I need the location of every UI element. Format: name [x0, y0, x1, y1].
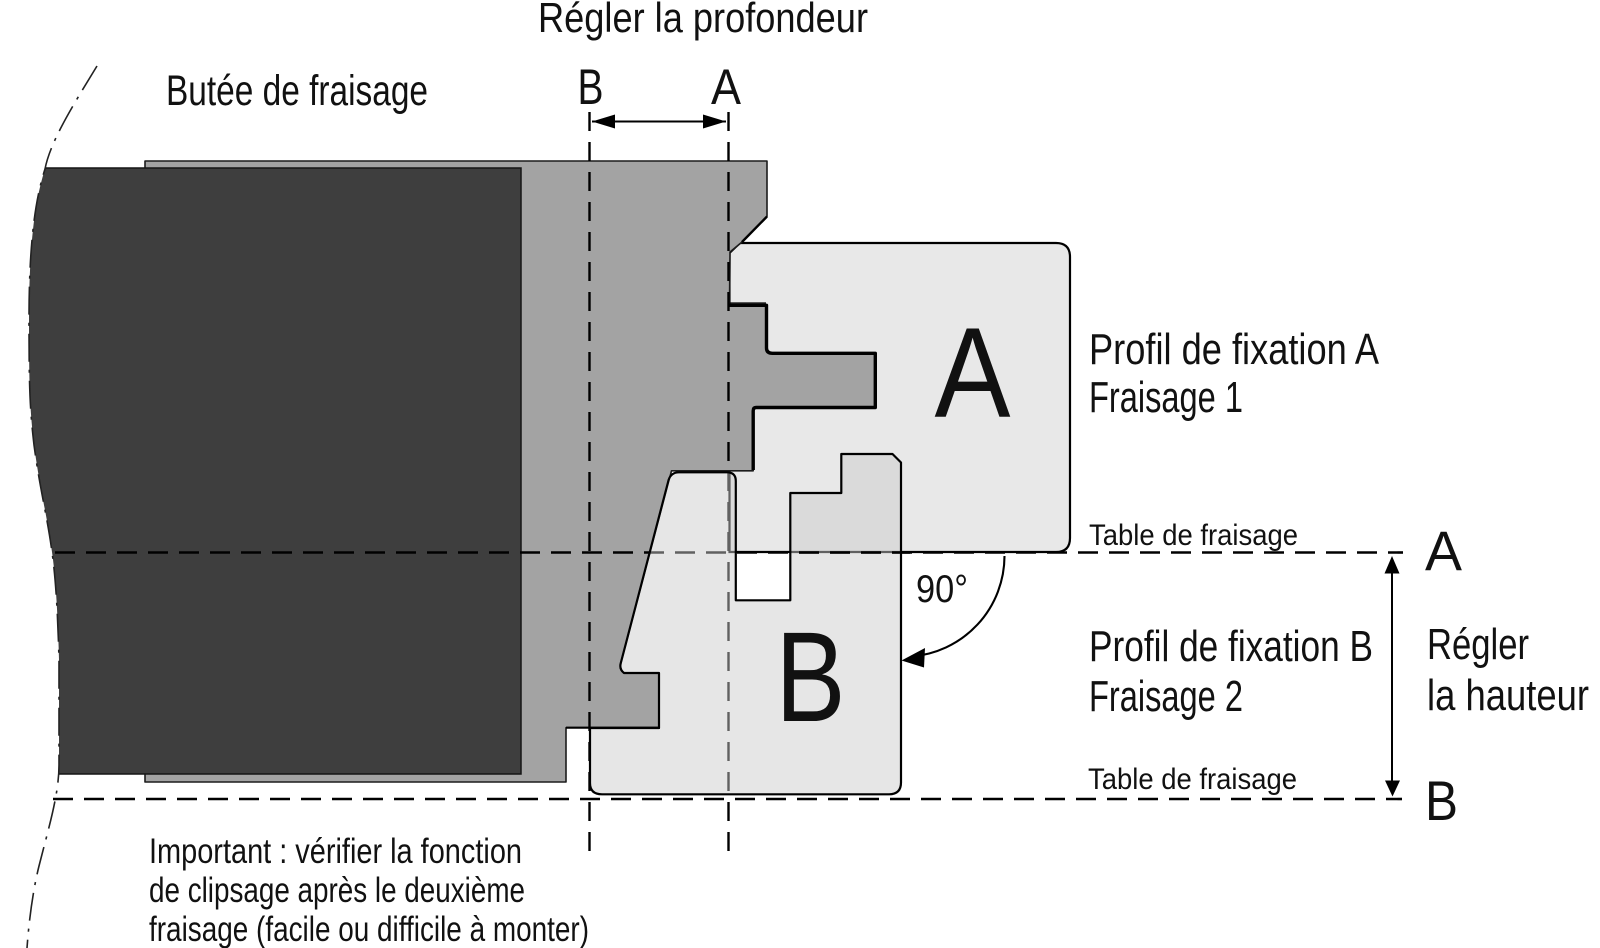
- svg-text:B: B: [578, 59, 604, 115]
- svg-text:la hauteur: la hauteur: [1427, 671, 1589, 720]
- svg-text:Profil de fixation B: Profil de fixation B: [1089, 622, 1373, 671]
- svg-text:Régler: Régler: [1427, 620, 1529, 669]
- svg-text:fraisage (facile ou difficile: fraisage (facile ou difficile à monter): [149, 910, 589, 948]
- svg-text:Fraisage 2: Fraisage 2: [1089, 672, 1243, 721]
- svg-text:A: A: [711, 59, 742, 115]
- svg-text:A: A: [1425, 519, 1463, 582]
- svg-text:B: B: [776, 606, 846, 749]
- svg-text:Fraisage 1: Fraisage 1: [1089, 373, 1243, 422]
- svg-text:90°: 90°: [916, 568, 968, 611]
- svg-text:Régler la profondeur: Régler la profondeur: [538, 0, 868, 41]
- svg-text:Profil de fixation A: Profil de fixation A: [1089, 325, 1380, 374]
- svg-text:B: B: [1425, 769, 1458, 832]
- svg-text:A: A: [935, 302, 1012, 445]
- svg-text:Butée de fraisage: Butée de fraisage: [166, 67, 428, 115]
- svg-text:Important : vérifier la foncti: Important : vérifier la fonction: [149, 832, 522, 871]
- svg-text:Table de fraisage: Table de fraisage: [1088, 763, 1297, 796]
- svg-text:Table de fraisage: Table de fraisage: [1089, 519, 1298, 552]
- svg-text:de clipsage après le deuxième: de clipsage après le deuxième: [149, 871, 525, 910]
